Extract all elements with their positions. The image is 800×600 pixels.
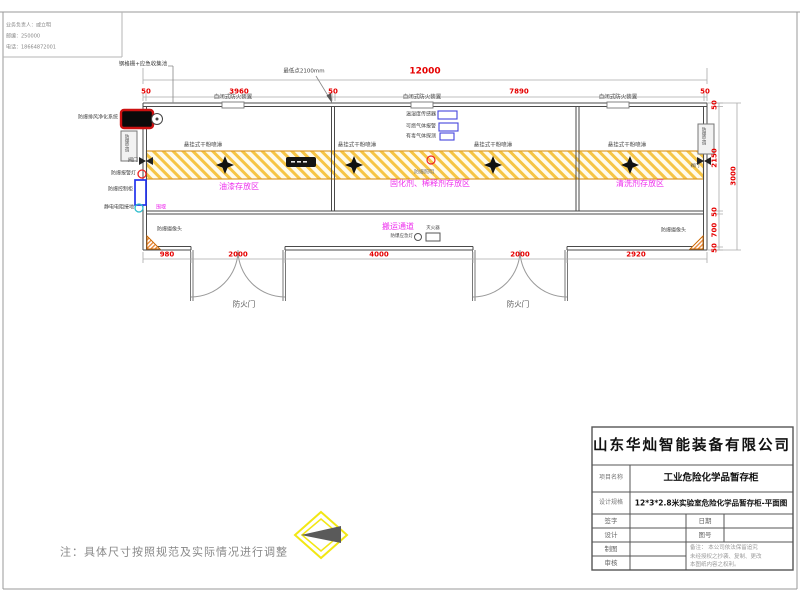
dim-top-4: 50	[700, 89, 710, 96]
camera-left-icon	[147, 236, 160, 249]
dim-bottom-4: 2920	[626, 252, 645, 259]
fire-damper-label-3: 自闭式防火装置	[599, 95, 638, 101]
spec-value: 12*3*2.8米实验室危险化学品暂存柜-平面图	[635, 499, 787, 507]
fire-damper-label-1: 自闭式防火装置	[214, 95, 253, 101]
zone-cleaning-label: 清洗剂存放区	[616, 180, 664, 188]
company-name: 山东华灿智能装备有限公司	[593, 439, 791, 454]
sensor-temp-label: 温湿度传感器	[406, 113, 436, 118]
gas-alarm-icon	[439, 123, 458, 131]
dim-right-3: 700	[712, 223, 719, 238]
control-cabinet-label: 防爆控制柜	[108, 188, 133, 193]
dim-bottom-0: 980	[160, 252, 175, 259]
exhaust-fan-icon	[121, 110, 153, 128]
dim-bottom-1: 2000	[228, 252, 247, 259]
spray-label-3: 悬挂式干粉喷淋	[474, 143, 513, 149]
valve-right-label: 阀门	[691, 165, 700, 170]
company-logo	[295, 512, 347, 558]
sign-label: 签字	[605, 518, 618, 525]
spray-label-4: 悬挂式干粉喷淋	[608, 143, 647, 149]
dim-right-0: 50	[712, 100, 719, 110]
camera-left-label: 防爆摄像头	[157, 228, 182, 233]
fire-door-label-1: 防火门	[233, 300, 256, 308]
contact-line-2: 邮编：250000	[6, 35, 40, 40]
contact-line-1: 业务负责人：戚立明	[6, 24, 51, 29]
review-label: 审核	[605, 560, 618, 567]
dim-right-1: 2150	[712, 148, 719, 167]
remark-text: 备注： 本公司依法保留追究 未经授权之抄袭、复制、更改 本图纸内容之权利。	[690, 544, 790, 570]
date-label: 日期	[699, 518, 712, 525]
dim-total-width: 12000	[409, 68, 440, 77]
temp-humidity-sensor-icon	[438, 111, 457, 119]
dim-right-4: 50	[712, 243, 719, 253]
sensor-gas-label: 可燃气体报警	[406, 125, 436, 130]
channel-label: 搬运通道	[382, 223, 414, 231]
bund-label: 围堰	[156, 206, 166, 211]
zone-paint-label: 油漆存放区	[219, 183, 259, 191]
adjustment-note: 注：具体尺寸按照规范及实际情况进行调整	[60, 547, 288, 558]
extinguisher-box-icon	[426, 233, 440, 241]
fire-door-label-2: 防火门	[507, 300, 530, 308]
dim-top-2: 50	[328, 89, 338, 96]
design-label: 设计	[605, 532, 618, 539]
dim-bottom-2: 4000	[369, 252, 388, 259]
valve-left-label: 阀门	[128, 159, 138, 164]
static-ground-label: 静电电阻接地	[104, 206, 134, 211]
alarm-light-icon	[138, 170, 146, 178]
dim-bottom-3: 2000	[510, 252, 529, 259]
zone-curing-label: 固化剂、稀释剂存放区	[390, 180, 470, 188]
camera-right-label: 防爆摄像头	[661, 229, 686, 234]
project-value: 工业危险化学品暂存柜	[663, 473, 758, 483]
drawing-no-label: 图号	[699, 532, 712, 539]
camera-right-icon	[690, 236, 703, 249]
contact-line-3: 电话：18664872001	[6, 46, 56, 51]
fire-damper-label-2: 自闭式防火装置	[403, 95, 442, 101]
extinguisher-label: 灭火器	[426, 227, 440, 232]
dim-top-3: 7890	[509, 89, 528, 96]
exhaust-label: 防爆排风净化系统	[78, 116, 118, 121]
dim-top-0: 50	[141, 89, 151, 96]
cad-drawing-sheet: 业务负责人：戚立明 邮编：250000 电话：18664872001 12000…	[0, 0, 800, 600]
lighting-label: 防爆照明	[414, 171, 434, 176]
emergency-light-icon	[415, 234, 422, 241]
plan-drawing	[0, 0, 800, 600]
spray-label-1: 悬挂式干粉喷淋	[184, 143, 223, 149]
spec-label: 设计规格	[599, 500, 623, 506]
lowest-point-label: 最低点2100mm	[283, 69, 324, 75]
dim-total-height: 3000	[731, 166, 738, 185]
spray-label-2: 悬挂式干粉喷淋	[338, 143, 377, 149]
toxic-gas-detector-icon	[440, 133, 454, 140]
draft-label: 制图	[605, 546, 618, 553]
alarm-light-label: 防爆报警灯	[111, 172, 136, 177]
sensor-toxic-label: 有毒气体探测	[406, 135, 436, 140]
control-cabinet-icon	[135, 180, 146, 205]
emergency-light-label: 防爆应急灯	[391, 235, 414, 240]
project-label: 项目名称	[599, 475, 623, 481]
ac-right-label: 防爆空调	[700, 127, 706, 145]
ac-left-label: 防爆空调	[123, 134, 129, 152]
grating-label: 钢格栅+应急收集池	[119, 62, 168, 68]
dim-right-2: 50	[712, 207, 719, 217]
